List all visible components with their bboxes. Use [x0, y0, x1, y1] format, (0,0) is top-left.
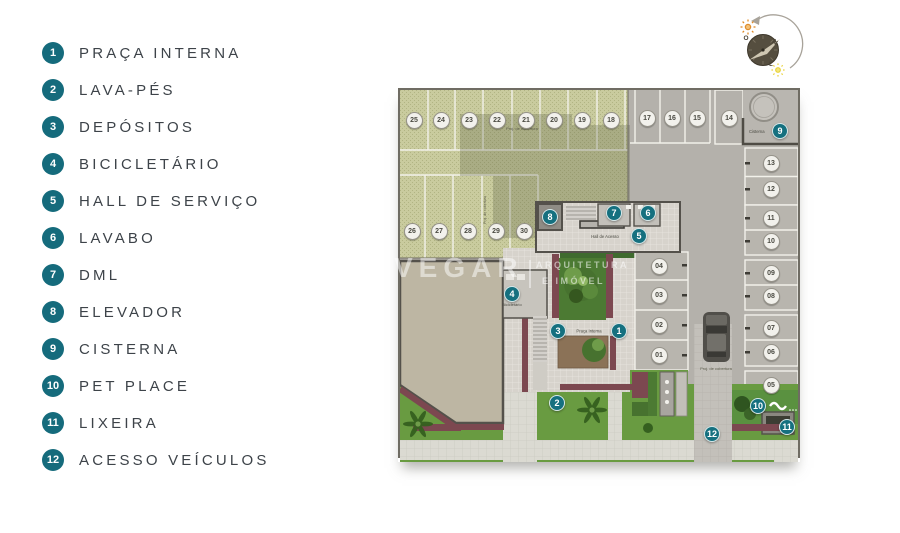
- parking-spot-marker: 18: [603, 112, 620, 129]
- compass-graphic: O N L: [724, 8, 808, 84]
- parking-spot-marker: 07: [763, 320, 780, 337]
- parking-spot-marker: 10: [763, 233, 780, 250]
- plan-number-badge: 9: [772, 123, 788, 139]
- legend-item-label: LIXEIRA: [79, 415, 159, 432]
- legend-item-number: 6: [42, 227, 64, 249]
- compass-letter-west: O: [743, 35, 748, 42]
- parking-spot-marker: 25: [406, 112, 423, 129]
- legend-item-number: 7: [42, 264, 64, 286]
- legend-item-label: PET PLACE: [79, 378, 190, 395]
- plan-number-badge: 11: [779, 419, 795, 435]
- plan-number-badge: 7: [606, 205, 622, 221]
- legend-item-label: HALL DE SERVIÇO: [79, 193, 260, 210]
- plan-number-badge: 10: [750, 398, 766, 414]
- parking-spot-marker: 09: [763, 265, 780, 282]
- legend-item-label: BICICLETÁRIO: [79, 156, 222, 173]
- parking-spot-marker: 14: [721, 110, 738, 127]
- parking-spot-marker: 15: [689, 110, 706, 127]
- sunset-sun-icon: [741, 20, 756, 35]
- legend-item-label: LAVA-PÉS: [79, 82, 176, 99]
- legend-item-number: 3: [42, 116, 64, 138]
- parking-spot-marker: 30: [516, 223, 533, 240]
- legend-item-label: ELEVADOR: [79, 304, 185, 321]
- compass-letter-east: L: [769, 62, 773, 68]
- plan-markers: 2524232221201918171615142627282930131211…: [398, 88, 800, 462]
- parking-spot-marker: 28: [460, 223, 477, 240]
- parking-spot-marker: 06: [763, 344, 780, 361]
- plan-number-badge: 1: [611, 323, 627, 339]
- legend-item-label: ACESSO VEÍCULOS: [79, 452, 270, 469]
- legend-item-label: PRAÇA INTERNA: [79, 45, 241, 62]
- site-plan: Cisterna: [398, 88, 800, 462]
- legend-item-label: DML: [79, 267, 120, 284]
- legend-item-number: 12: [42, 449, 64, 471]
- legend-item-number: 11: [42, 412, 64, 434]
- parking-spot-marker: 26: [404, 223, 421, 240]
- legend-item-number: 4: [42, 153, 64, 175]
- legend-item: 9CISTERNA: [42, 338, 270, 360]
- parking-spot-marker: 03: [651, 287, 668, 304]
- plan-number-badge: 3: [550, 323, 566, 339]
- parking-spot-marker: 19: [574, 112, 591, 129]
- legend-item: 5HALL DE SERVIÇO: [42, 190, 270, 212]
- legend-item-number: 5: [42, 190, 64, 212]
- legend-item: 12ACESSO VEÍCULOS: [42, 449, 270, 471]
- legend-item: 8ELEVADOR: [42, 301, 270, 323]
- legend-item: 11LIXEIRA: [42, 412, 270, 434]
- parking-spot-marker: 17: [639, 110, 656, 127]
- legend-item-number: 10: [42, 375, 64, 397]
- plan-number-badge: 2: [549, 395, 565, 411]
- arc-arrowhead-icon: [751, 16, 760, 25]
- legend-item-number: 9: [42, 338, 64, 360]
- parking-spot-marker: 29: [488, 223, 505, 240]
- legend-item-number: 1: [42, 42, 64, 64]
- legend-item: 4BICICLETÁRIO: [42, 153, 270, 175]
- parking-spot-marker: 22: [489, 112, 506, 129]
- sunrise-sun-icon: [771, 63, 784, 76]
- parking-spot-marker: 20: [546, 112, 563, 129]
- parking-spot-marker: 01: [651, 347, 668, 364]
- parking-spot-marker: 02: [651, 317, 668, 334]
- legend-item: 3DEPÓSITOS: [42, 116, 270, 138]
- parking-spot-marker: 27: [431, 223, 448, 240]
- legend-item: 7DML: [42, 264, 270, 286]
- parking-spot-marker: 11: [763, 210, 780, 227]
- plan-number-badge: 8: [542, 209, 558, 225]
- plan-number-badge: 4: [504, 286, 520, 302]
- plan-number-badge: 12: [704, 426, 720, 442]
- plan-number-badge: 6: [640, 205, 656, 221]
- legend-item: 2LAVA-PÉS: [42, 79, 270, 101]
- legend-item: 6LAVABO: [42, 227, 270, 249]
- legend-item-number: 8: [42, 301, 64, 323]
- parking-spot-marker: 13: [763, 155, 780, 172]
- parking-spot-marker: 04: [651, 258, 668, 275]
- parking-spot-marker: 24: [433, 112, 450, 129]
- legend-item: 1PRAÇA INTERNA: [42, 42, 270, 64]
- legend-item-label: DEPÓSITOS: [79, 119, 195, 136]
- parking-spot-marker: 08: [763, 288, 780, 305]
- parking-spot-marker: 21: [518, 112, 535, 129]
- parking-spot-marker: 23: [461, 112, 478, 129]
- parking-spot-marker: 12: [763, 181, 780, 198]
- legend-item: 10PET PLACE: [42, 375, 270, 397]
- compass: O N L: [724, 8, 808, 84]
- legend-item-label: LAVABO: [79, 230, 156, 247]
- legend: 1PRAÇA INTERNA2LAVA-PÉS3DEPÓSITOS4BICICL…: [42, 42, 270, 486]
- parking-spot-marker: 16: [664, 110, 681, 127]
- plan-number-badge: 5: [631, 228, 647, 244]
- parking-spot-marker: 05: [763, 377, 780, 394]
- legend-item-label: CISTERNA: [79, 341, 180, 358]
- legend-item-number: 2: [42, 79, 64, 101]
